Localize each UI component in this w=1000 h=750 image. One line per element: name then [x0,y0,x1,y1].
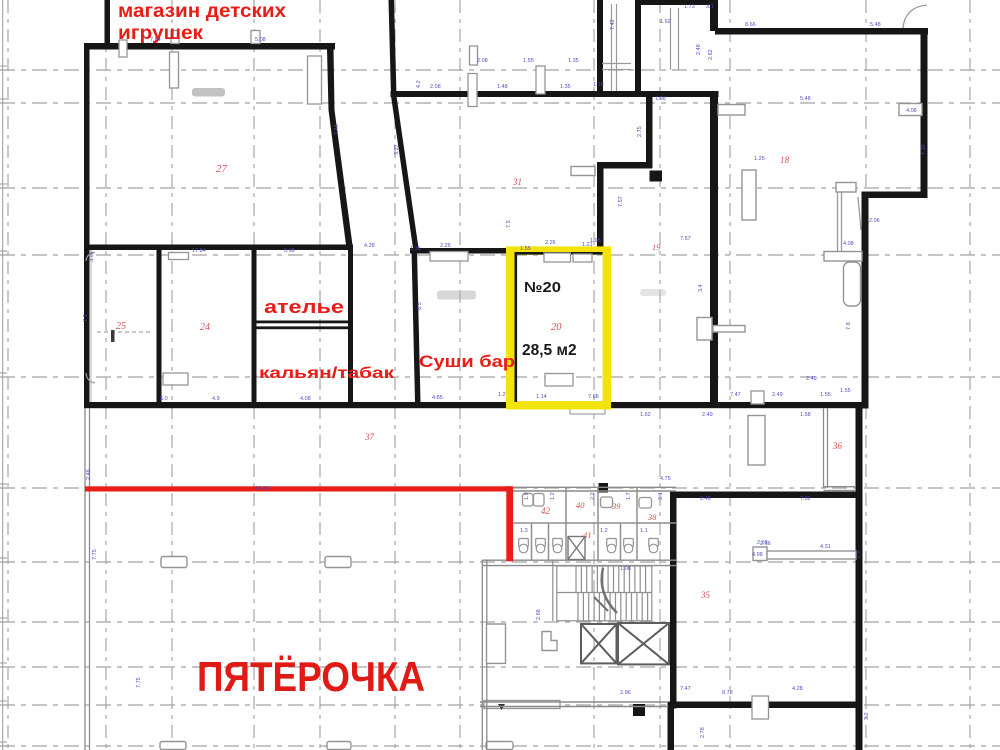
svg-text:2.08: 2.08 [477,58,488,64]
svg-text:1.3: 1.3 [520,528,528,534]
svg-text:18: 18 [780,155,790,165]
svg-text:5.48: 5.48 [870,22,881,28]
svg-text:1.55: 1.55 [840,388,851,394]
svg-text:1.62: 1.62 [640,412,651,418]
svg-text:1.62: 1.62 [660,19,671,25]
svg-text:1.73: 1.73 [684,4,695,10]
svg-text:1.14: 1.14 [536,394,547,400]
svg-text:1.21: 1.21 [582,242,593,248]
svg-text:2.08: 2.08 [430,84,441,90]
svg-text:1.2: 1.2 [498,392,506,398]
svg-text:ателье: ателье [264,296,344,317]
svg-text:7.75: 7.75 [136,677,142,688]
svg-text:4.28: 4.28 [364,243,375,249]
svg-text:3.4: 3.4 [698,284,704,292]
svg-text:4.08: 4.08 [300,396,311,402]
svg-text:4.28: 4.28 [792,686,803,692]
svg-text:8.66: 8.66 [745,22,756,28]
svg-text:1.58: 1.58 [800,412,811,418]
svg-text:4.85: 4.85 [432,395,443,401]
svg-text:2.49: 2.49 [772,392,783,398]
svg-text:1.35: 1.35 [410,246,421,252]
svg-text:2.49: 2.49 [806,376,817,382]
svg-text:31: 31 [512,177,522,187]
svg-text:2.62: 2.62 [708,49,714,60]
svg-text:2.68: 2.68 [536,609,542,620]
svg-text:19: 19 [652,242,661,252]
svg-text:№20: №20 [524,280,561,296]
svg-text:2.46: 2.46 [86,469,92,480]
svg-text:2.2: 2.2 [590,492,596,500]
svg-text:2.75: 2.75 [637,126,643,137]
svg-text:2.96: 2.96 [620,690,631,696]
svg-text:7.3: 7.3 [83,314,89,322]
svg-text:1.35: 1.35 [568,58,579,64]
svg-text:1.55: 1.55 [520,246,531,252]
svg-text:1.18: 1.18 [593,82,604,88]
svg-text:8.5: 8.5 [417,302,423,310]
svg-text:5.0: 5.0 [160,396,168,402]
svg-text:4.2: 4.2 [416,80,422,88]
svg-text:4.75: 4.75 [660,476,671,482]
svg-text:2.48: 2.48 [696,44,702,55]
svg-text:1.35: 1.35 [560,84,571,90]
svg-text:8.78: 8.78 [722,690,733,696]
svg-text:25: 25 [116,321,126,332]
svg-text:3.2: 3.2 [864,712,870,720]
svg-text:1.08: 1.08 [620,566,631,572]
svg-text:4.31: 4.31 [820,544,831,550]
svg-text:7.84: 7.84 [150,37,161,43]
svg-text:27: 27 [216,163,228,175]
svg-text:1.55: 1.55 [820,392,831,398]
svg-text:7.68: 7.68 [588,394,599,400]
svg-text:5.08: 5.08 [255,37,266,43]
svg-text:20.90: 20.90 [255,486,269,492]
svg-text:2.49: 2.49 [702,412,713,418]
svg-text:4.98: 4.98 [752,552,763,558]
svg-text:1.2: 1.2 [550,492,556,500]
svg-text:7.75: 7.75 [92,549,98,560]
svg-text:28,5 м2: 28,5 м2 [522,342,577,359]
svg-text:2.06: 2.06 [869,218,880,224]
svg-text:2.78: 2.78 [700,727,706,738]
svg-text:7.47: 7.47 [680,686,691,692]
svg-text:1.48: 1.48 [497,84,508,90]
svg-text:1.7: 1.7 [626,492,632,500]
svg-text:42: 42 [541,506,551,516]
svg-text:2.49: 2.49 [700,496,711,502]
svg-text:7.48: 7.48 [334,124,340,135]
svg-text:2.26: 2.26 [440,243,451,249]
svg-text:40: 40 [576,500,585,510]
svg-text:1.55: 1.55 [523,58,534,64]
svg-text:39: 39 [611,501,621,511]
svg-text:4.08: 4.08 [906,108,917,114]
svg-text:7.57: 7.57 [680,236,691,242]
svg-text:1.98: 1.98 [655,96,666,102]
svg-text:7.32: 7.32 [800,496,811,502]
svg-text:41: 41 [583,530,592,540]
svg-text:2.9: 2.9 [856,550,862,558]
svg-text:3.1: 3.1 [706,4,714,10]
svg-text:3.98: 3.98 [284,248,295,254]
svg-text:37: 37 [364,432,375,442]
svg-text:4.08: 4.08 [843,241,854,247]
svg-text:3.08: 3.08 [89,251,95,262]
svg-text:1.1: 1.1 [640,528,648,534]
svg-text:1.25: 1.25 [754,156,765,162]
svg-text:36: 36 [832,441,843,451]
svg-text:Суши бар: Суши бар [419,353,515,371]
svg-text:24: 24 [200,322,210,333]
svg-text:5.48: 5.48 [800,96,811,102]
svg-text:ПЯТЁРОЧКА: ПЯТЁРОЧКА [197,653,425,700]
svg-text:38: 38 [647,512,657,522]
svg-text:7.8: 7.8 [846,322,852,330]
svg-text:2.26: 2.26 [545,240,556,246]
svg-text:2.16: 2.16 [760,541,771,547]
svg-text:7.47: 7.47 [730,392,741,398]
svg-text:7.32: 7.32 [921,144,927,155]
svg-text:7.57: 7.57 [618,196,624,207]
svg-text:17.84: 17.84 [192,248,206,254]
svg-text:35: 35 [700,590,711,600]
svg-text:магазин детских: магазин детских [118,0,286,22]
svg-text:4.9: 4.9 [212,396,220,402]
svg-text:1.9: 1.9 [524,492,530,500]
svg-text:7.5: 7.5 [506,220,512,228]
svg-text:1.2: 1.2 [600,528,608,534]
svg-text:2.1: 2.1 [658,492,664,500]
svg-text:20: 20 [551,322,562,333]
svg-text:7.42: 7.42 [610,19,616,30]
svg-text:3.27: 3.27 [394,144,400,155]
svg-text:кальян/табак: кальян/табак [259,365,394,382]
